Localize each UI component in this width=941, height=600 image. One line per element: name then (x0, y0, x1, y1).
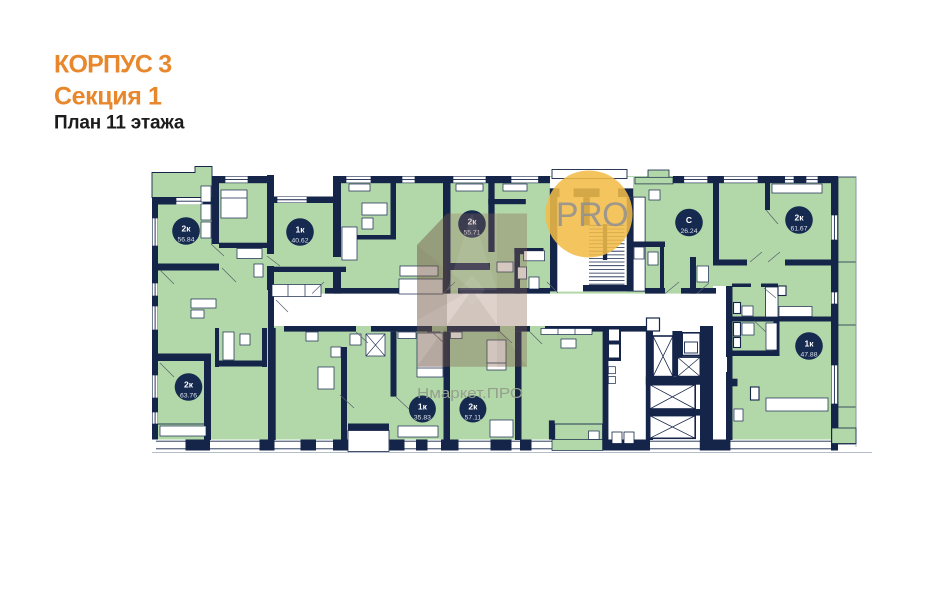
svg-text:35.83: 35.83 (414, 415, 431, 422)
svg-text:PRO: PRO (556, 196, 628, 234)
svg-text:26.24: 26.24 (680, 228, 697, 235)
svg-text:2к: 2к (184, 380, 194, 390)
svg-text:63.76: 63.76 (180, 393, 197, 400)
svg-text:Нмаркет.ПРО: Нмаркет.ПРО (417, 385, 523, 402)
svg-text:Секция 1: Секция 1 (54, 83, 162, 111)
svg-text:57.11: 57.11 (465, 415, 482, 422)
svg-text:2к: 2к (468, 402, 478, 412)
svg-text:61.67: 61.67 (790, 226, 807, 233)
svg-text:2к: 2к (795, 213, 805, 223)
svg-text:1к: 1к (418, 402, 428, 412)
svg-text:40.62: 40.62 (291, 238, 308, 245)
svg-text:План 11 этажа: План 11 этажа (54, 113, 185, 134)
svg-text:КОРПУС 3: КОРПУС 3 (54, 51, 171, 79)
svg-text:1к: 1к (296, 225, 306, 235)
svg-text:2к: 2к (182, 224, 192, 234)
svg-text:1к: 1к (805, 339, 815, 349)
svg-text:47.88: 47.88 (800, 352, 817, 359)
svg-text:56.84: 56.84 (177, 237, 194, 244)
svg-text:С: С (686, 215, 692, 225)
